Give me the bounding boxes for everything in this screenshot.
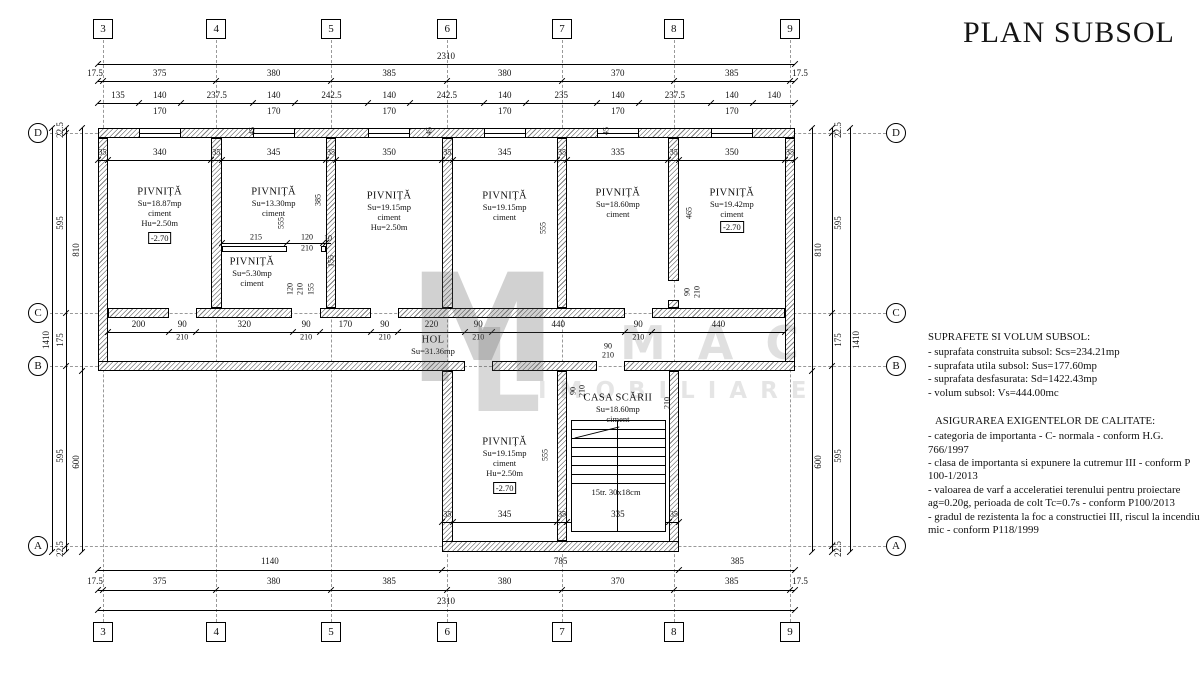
dim-label: 45 (602, 127, 611, 135)
room-info: ciment (720, 209, 743, 219)
dim-label: 210 (472, 333, 484, 342)
dim-label: 140 (725, 90, 739, 100)
room-info: Su=13.30mp (252, 198, 296, 208)
room-info: ciment (606, 209, 629, 219)
dim-label: 242.5 (437, 90, 457, 100)
room-name: PIVNIȚĂ (709, 188, 754, 199)
wall (108, 308, 168, 319)
dim-label: 380 (267, 68, 281, 78)
wall (492, 361, 597, 372)
wall (442, 371, 453, 552)
room-info: ciment (378, 212, 401, 222)
grid-bubble-row-A: A (28, 536, 48, 556)
dim-label: 140 (767, 90, 781, 100)
notes-panel: SUPRAFETE SI VOLUM SUBSOL: - suprafata c… (928, 331, 1200, 537)
dim-label: 595 (55, 216, 65, 230)
room-info: Hu=2.50m (371, 222, 408, 232)
room-info: ciment (262, 208, 285, 218)
dim-label: 35 (558, 510, 566, 519)
dim-label: 17.5 (792, 68, 808, 78)
grid-bubble-col-4: 4 (206, 19, 226, 39)
room-name: CASA SCĂRII (583, 393, 652, 404)
room-info: Su=18.60mp (596, 199, 640, 209)
wall (98, 138, 109, 371)
room-info: Hu=2.50m (141, 218, 178, 228)
room-name: PIVNIȚĂ (482, 191, 527, 202)
wall (442, 541, 679, 552)
dim-label: 237.5 (665, 90, 685, 100)
grid-bubble-col-5: 5 (321, 622, 341, 642)
dim-label: 90 (604, 342, 612, 351)
dim-line (812, 128, 813, 552)
window (253, 128, 295, 139)
room-info: Su=19.42mp (710, 199, 754, 209)
dim-label: 340 (153, 147, 167, 157)
dim-label: 385 (314, 194, 323, 206)
dim-line (98, 570, 796, 571)
surface-note: - volum subsol: Vs=444.00mc (928, 387, 1200, 400)
room-info: Su=18.60mp (596, 404, 640, 414)
dim-tick (792, 61, 798, 67)
stair-tread (571, 465, 665, 466)
dim-label: 135 (111, 90, 125, 100)
window-glass-line (485, 133, 525, 134)
dim-label: 380 (267, 576, 281, 586)
grid-bubble-row-C: C (28, 303, 48, 323)
wall (624, 361, 795, 372)
dim-label: 595 (55, 449, 65, 463)
wall (785, 138, 796, 371)
grid-bubble-col-3: 3 (93, 19, 113, 39)
dim-line (98, 103, 796, 104)
dim-line (98, 160, 796, 161)
dim-label: 170 (153, 106, 167, 116)
dim-tick (79, 549, 85, 555)
wall (320, 308, 371, 319)
grid-bubble-col-6: 6 (437, 19, 457, 39)
grid-bubble-col-9: 9 (780, 19, 800, 39)
dim-label: 440 (712, 319, 726, 329)
surfaces-title: SUPRAFETE SI VOLUM SUBSOL: (928, 331, 1200, 344)
dim-label: 155 (327, 255, 336, 267)
dim-label: 17.5 (87, 576, 103, 586)
wall (211, 138, 222, 307)
dim-label: 215 (250, 233, 262, 242)
dim-label: 210 (602, 351, 614, 360)
quality-note: - gradul de rezistenta la foc a construc… (928, 511, 1200, 538)
room-info: Su=18.87mp (138, 198, 182, 208)
room-name: PIVNIȚĂ (482, 437, 527, 448)
dim-label: 90 (683, 288, 692, 296)
window (711, 128, 753, 139)
room-info: ciment (148, 208, 171, 218)
dim-tick (847, 549, 853, 555)
dim-label: 140 (498, 90, 512, 100)
dim-label: 90 (634, 319, 643, 329)
wall (98, 128, 796, 139)
stair-tread (571, 447, 665, 448)
dim-label: 345 (498, 147, 512, 157)
dim-label: 2310 (437, 51, 455, 61)
grid-bubble-col-8: 8 (664, 19, 684, 39)
dim-line (108, 332, 785, 333)
quality-title: ASIGURAREA EXIGENTELOR DE CALITATE: (935, 415, 1200, 428)
dim-label: 385 (382, 68, 396, 78)
room-name: PIVNIȚĂ (137, 187, 182, 198)
dim-line (82, 128, 83, 552)
quality-note: - clasa de importanta si expunere la cut… (928, 457, 1200, 484)
dim-label: 385 (730, 556, 744, 566)
room-info: Su=5.30mp (232, 268, 272, 278)
drawing-sheet: PLAN SUBSOL 33445566778899DDCCBBAA231017… (0, 0, 1200, 678)
surface-note: - suprafata construita subsol: Scs=234.2… (928, 346, 1200, 359)
dim-label: 22.5 (833, 123, 843, 139)
window (484, 128, 526, 139)
dim-label: 350 (725, 147, 739, 157)
window-glass-line (254, 133, 294, 134)
dim-label: 320 (237, 319, 251, 329)
dim-label: 175 (833, 333, 843, 347)
dim-label: 1410 (41, 331, 51, 349)
dim-label: 380 (498, 68, 512, 78)
dim-label: 210 (301, 244, 313, 253)
room-name: PIVNIȚĂ (230, 257, 275, 268)
grid-bubble-col-3: 3 (93, 622, 113, 642)
grid-bubble-col-6: 6 (437, 622, 457, 642)
wall (442, 138, 453, 307)
dim-label: 140 (153, 90, 167, 100)
dim-label: 380 (498, 576, 512, 586)
dim-label: 170 (382, 106, 396, 116)
wall (196, 308, 293, 319)
dim-label: 370 (611, 68, 625, 78)
window-glass-line (140, 133, 180, 134)
dim-label: 555 (277, 217, 286, 229)
room-info: Su=19.15mp (483, 202, 527, 212)
grid-bubble-row-D: D (886, 123, 906, 143)
grid-bubble-row-B: B (886, 356, 906, 376)
dim-label: 22.5 (833, 541, 843, 557)
dim-label: 90 (178, 319, 187, 329)
dim-label: 335 (611, 147, 625, 157)
dim-tick (809, 549, 815, 555)
dim-line (98, 610, 796, 611)
dim-label: 17.5 (792, 576, 808, 586)
dim-line (66, 128, 67, 552)
room-level-badge: -2.70 (493, 482, 517, 494)
quality-note: - valoarea de varf a acceleratiei terenu… (928, 484, 1200, 511)
dim-label: 170 (267, 106, 281, 116)
grid-bubble-col-9: 9 (780, 622, 800, 642)
room-name: HOL (422, 335, 445, 346)
dim-label: 345 (267, 147, 281, 157)
dim-label: 345 (498, 509, 512, 519)
dim-label: 210 (296, 283, 305, 295)
window (139, 128, 181, 139)
dim-label: 170 (725, 106, 739, 116)
dim-label: 170 (339, 319, 353, 329)
grid-bubble-col-8: 8 (664, 622, 684, 642)
dim-line (52, 128, 53, 552)
dim-label: 1410 (851, 331, 861, 349)
dim-label: 385 (725, 68, 739, 78)
room-info: Su=19.15mp (483, 448, 527, 458)
dim-label: 350 (382, 147, 396, 157)
dim-tick (792, 607, 798, 613)
dim-label: 465 (685, 207, 694, 219)
dim-label: 2310 (437, 596, 455, 606)
dim-label: 140 (382, 90, 396, 100)
room-level-badge: -2.70 (148, 232, 172, 244)
surface-note: - suprafata utila subsol: Sus=177.60mp (928, 360, 1200, 373)
dim-label: 210 (300, 333, 312, 342)
room-name: PIVNIȚĂ (251, 187, 296, 198)
dim-label: 175 (55, 333, 65, 347)
dim-label: 170 (498, 106, 512, 116)
dim-label: 22.5 (55, 123, 65, 139)
dim-label: 1140 (261, 556, 279, 566)
dim-label: 210 (176, 333, 188, 342)
room-level-badge: -2.70 (720, 221, 744, 233)
dim-label: 375 (153, 68, 167, 78)
dim-label: 35 (786, 148, 794, 157)
grid-bubble-row-A: A (886, 536, 906, 556)
dim-label: 785 (554, 556, 568, 566)
dim-label: 120 (301, 233, 313, 242)
stair-note: 15tr. 30x18cm (591, 487, 640, 497)
wall (652, 308, 785, 319)
dim-label: 22.5 (55, 541, 65, 557)
surfaces-list: - suprafata construita subsol: Scs=234.2… (928, 346, 1200, 400)
dim-label: 90 (474, 319, 483, 329)
dim-label: 90 (569, 387, 578, 395)
dim-label: 90 (302, 319, 311, 329)
room-name: PIVNIȚĂ (367, 191, 412, 202)
dim-tick (792, 78, 798, 84)
dim-label: 220 (425, 319, 439, 329)
dim-tick (792, 567, 798, 573)
dim-label: 35 (99, 148, 107, 157)
dim-label: 45 (248, 127, 257, 135)
room-info: Hu=2.50m (486, 468, 523, 478)
window-glass-line (369, 133, 409, 134)
stair-tread (571, 456, 665, 457)
wall (557, 138, 568, 307)
dim-line (222, 243, 331, 244)
dim-label: 237.5 (207, 90, 227, 100)
dim-label: 370 (611, 576, 625, 586)
room-name: PIVNIȚĂ (595, 188, 640, 199)
dim-label: 375 (153, 576, 167, 586)
dim-label: 35 (443, 148, 451, 157)
dim-tick (792, 100, 798, 106)
dim-label: 210 (693, 286, 702, 298)
dim-label: 810 (71, 243, 81, 257)
dim-label: 140 (267, 90, 281, 100)
dim-label: 120 (286, 283, 295, 295)
quality-list: - categoria de importanta - C- normala -… (928, 430, 1200, 537)
stair-tread (571, 483, 665, 484)
dim-label: 35 (212, 148, 220, 157)
dim-label: 45 (425, 127, 434, 135)
grid-bubble-col-7: 7 (552, 19, 572, 39)
dim-label: 555 (539, 222, 548, 234)
dim-label: 35 (670, 148, 678, 157)
dim-label: 155 (307, 283, 316, 295)
wall (98, 361, 465, 372)
grid-bubble-row-D: D (28, 123, 48, 143)
dim-label: 440 (552, 319, 566, 329)
room-info: ciment (240, 278, 263, 288)
grid-bubble-row-B: B (28, 356, 48, 376)
dim-label: 595 (833, 449, 843, 463)
dim-label: 595 (833, 216, 843, 230)
quality-note: - categoria de importanta - C- normala -… (928, 430, 1200, 457)
dim-label: 385 (382, 576, 396, 586)
dim-label: 17.5 (87, 68, 103, 78)
dim-line (98, 64, 796, 65)
wall (326, 138, 337, 307)
dim-label: 35 (327, 148, 335, 157)
dim-label: 140 (611, 90, 625, 100)
watermark-logo: M (408, 255, 557, 405)
grid-bubble-col-5: 5 (321, 19, 341, 39)
stair-tread (571, 438, 665, 439)
dim-label: 210 (379, 333, 391, 342)
room-info: Su=31.36mp (411, 346, 455, 356)
dim-label: 600 (813, 455, 823, 469)
dim-label: 200 (132, 319, 146, 329)
room-info: Su=19.15mp (367, 202, 411, 212)
dim-label: 35 (670, 510, 678, 519)
window (368, 128, 410, 139)
dim-label: 810 (813, 243, 823, 257)
dim-label: 385 (725, 576, 739, 586)
dim-label: 35 (443, 510, 451, 519)
wall (398, 308, 624, 319)
dim-label: 242.5 (321, 90, 341, 100)
dim-label: 10 (324, 234, 332, 243)
window-glass-line (712, 133, 752, 134)
dim-label: 235 (555, 90, 569, 100)
dim-label: 600 (71, 455, 81, 469)
grid-bubble-col-4: 4 (206, 622, 226, 642)
room-info: ciment (606, 414, 629, 424)
dim-label: 210 (663, 397, 672, 409)
dim-label: 555 (541, 449, 550, 461)
dim-label: 90 (380, 319, 389, 329)
surface-note: - suprafata desfasurata: Sd=1422.43mp (928, 373, 1200, 386)
dim-label: 170 (611, 106, 625, 116)
stair-tread (571, 474, 665, 475)
partition-thin-wall (222, 246, 287, 252)
grid-bubble-col-7: 7 (552, 622, 572, 642)
dim-label: 335 (611, 509, 625, 519)
room-info: ciment (493, 212, 516, 222)
stair-tread (571, 429, 665, 430)
partition-thin-wall (321, 246, 326, 252)
dim-label: 210 (632, 333, 644, 342)
grid-bubble-row-C: C (886, 303, 906, 323)
dim-tick (792, 587, 798, 593)
room-info: ciment (493, 458, 516, 468)
dim-label: 35 (558, 148, 566, 157)
wall (668, 300, 679, 308)
